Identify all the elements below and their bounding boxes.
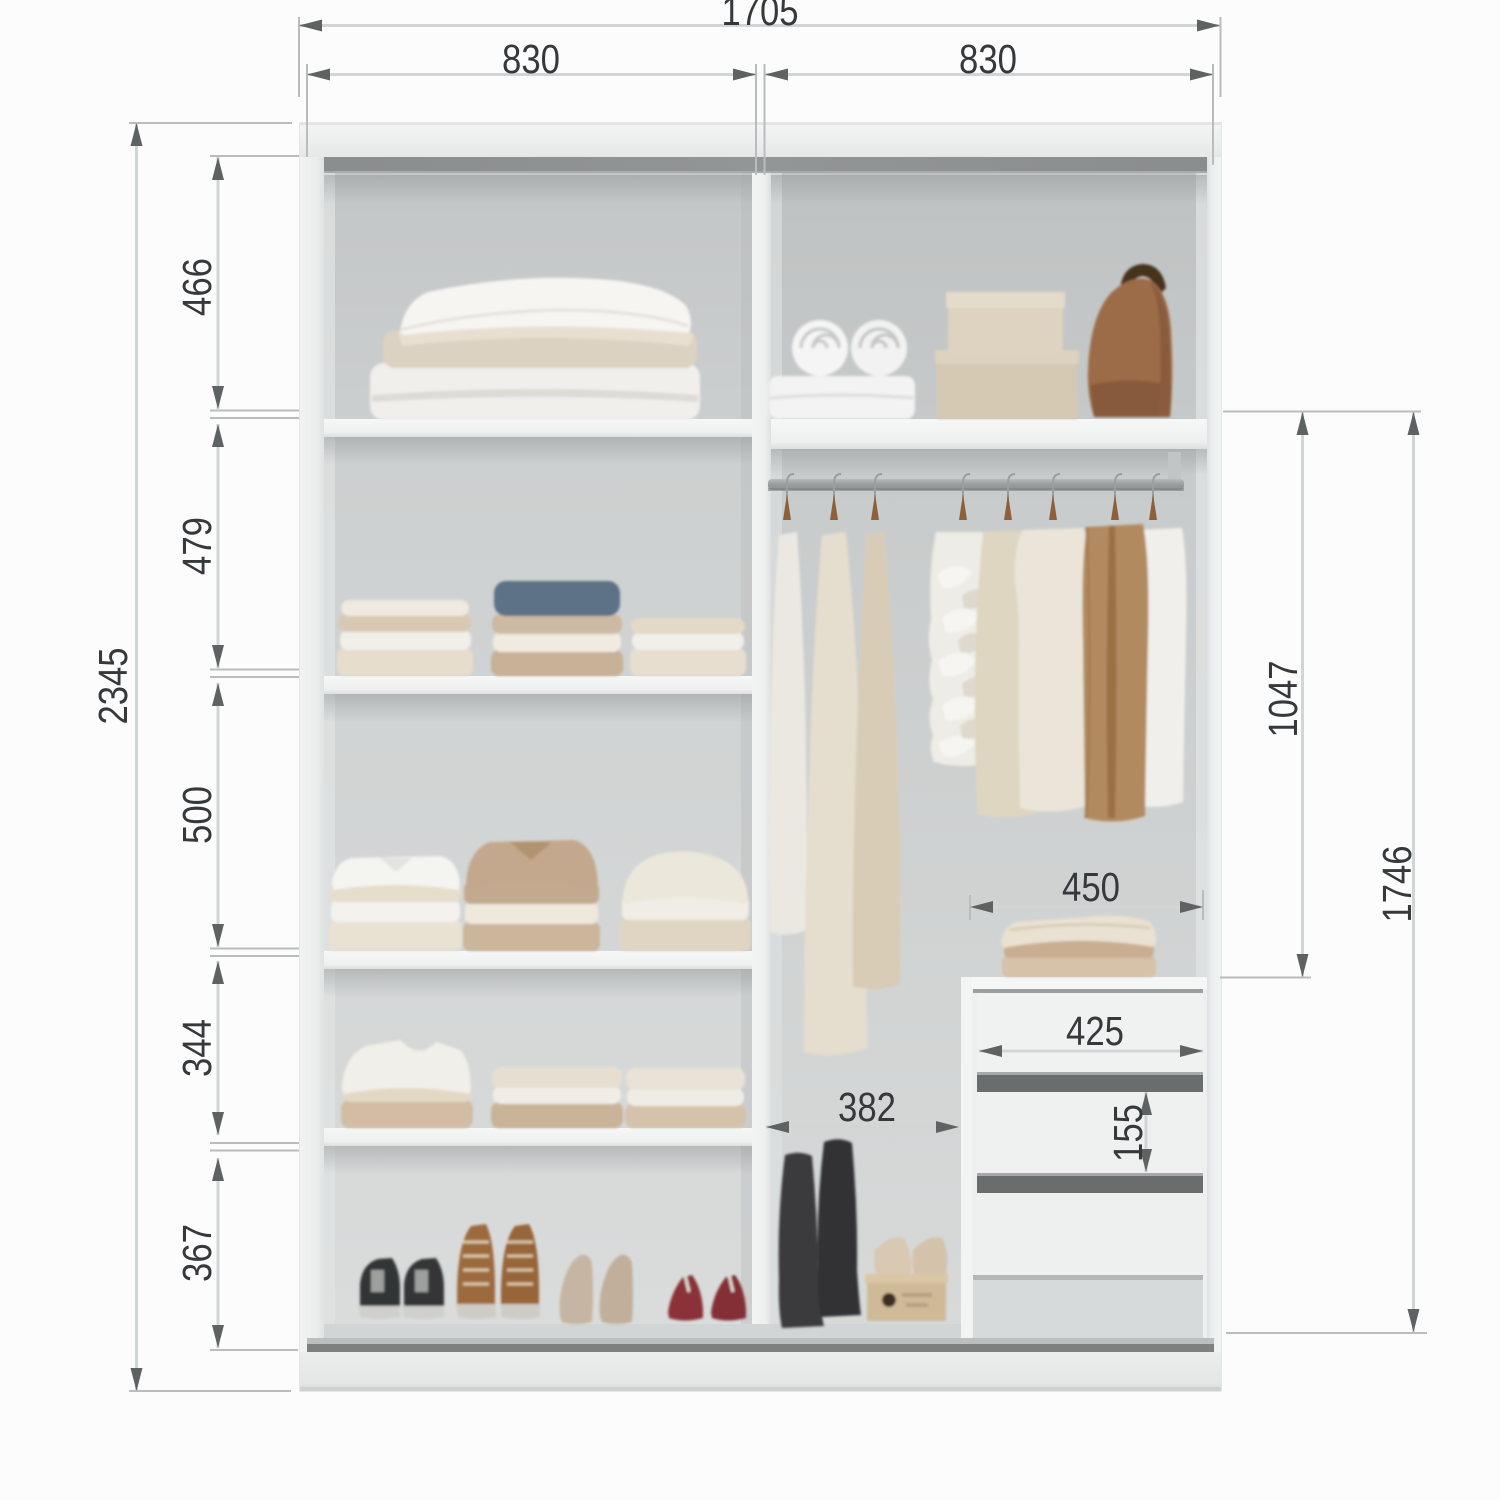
svg-text:367: 367 bbox=[174, 1224, 220, 1282]
svg-text:1705: 1705 bbox=[722, 0, 799, 34]
svg-text:425: 425 bbox=[1066, 1008, 1124, 1054]
svg-text:1746: 1746 bbox=[1374, 846, 1420, 923]
svg-text:450: 450 bbox=[1062, 864, 1120, 910]
svg-text:155: 155 bbox=[1105, 1104, 1151, 1162]
svg-text:382: 382 bbox=[838, 1084, 896, 1130]
svg-text:830: 830 bbox=[502, 36, 560, 82]
svg-text:344: 344 bbox=[174, 1019, 220, 1077]
svg-text:466: 466 bbox=[174, 258, 220, 316]
svg-text:1047: 1047 bbox=[1260, 661, 1306, 738]
svg-text:479: 479 bbox=[174, 517, 220, 575]
svg-text:2345: 2345 bbox=[90, 648, 136, 725]
svg-text:500: 500 bbox=[174, 786, 220, 844]
svg-text:830: 830 bbox=[959, 36, 1017, 82]
